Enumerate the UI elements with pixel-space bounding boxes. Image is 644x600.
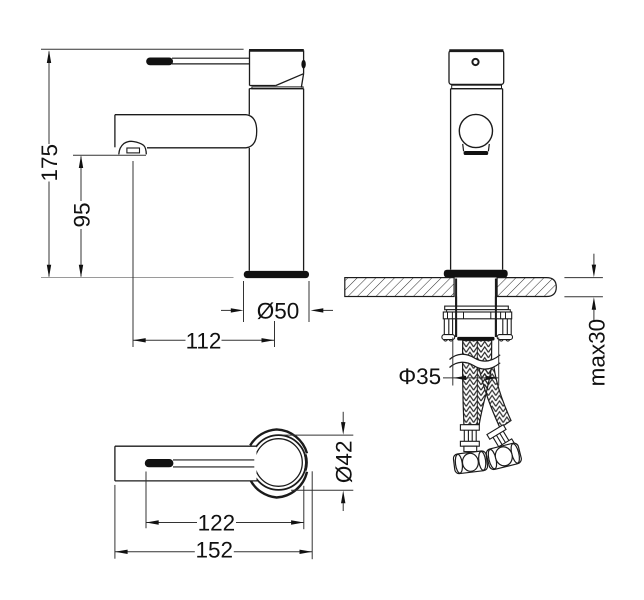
svg-text:Ø50: Ø50 bbox=[257, 298, 300, 323]
svg-text:122: 122 bbox=[198, 510, 236, 535]
svg-text:max30: max30 bbox=[585, 319, 610, 387]
svg-text:Ø42: Ø42 bbox=[332, 441, 357, 484]
svg-text:152: 152 bbox=[196, 538, 234, 563]
svg-text:Φ35: Φ35 bbox=[398, 364, 441, 389]
svg-text:95: 95 bbox=[70, 202, 95, 227]
svg-text:112: 112 bbox=[186, 328, 222, 353]
svg-text:175: 175 bbox=[37, 144, 62, 182]
